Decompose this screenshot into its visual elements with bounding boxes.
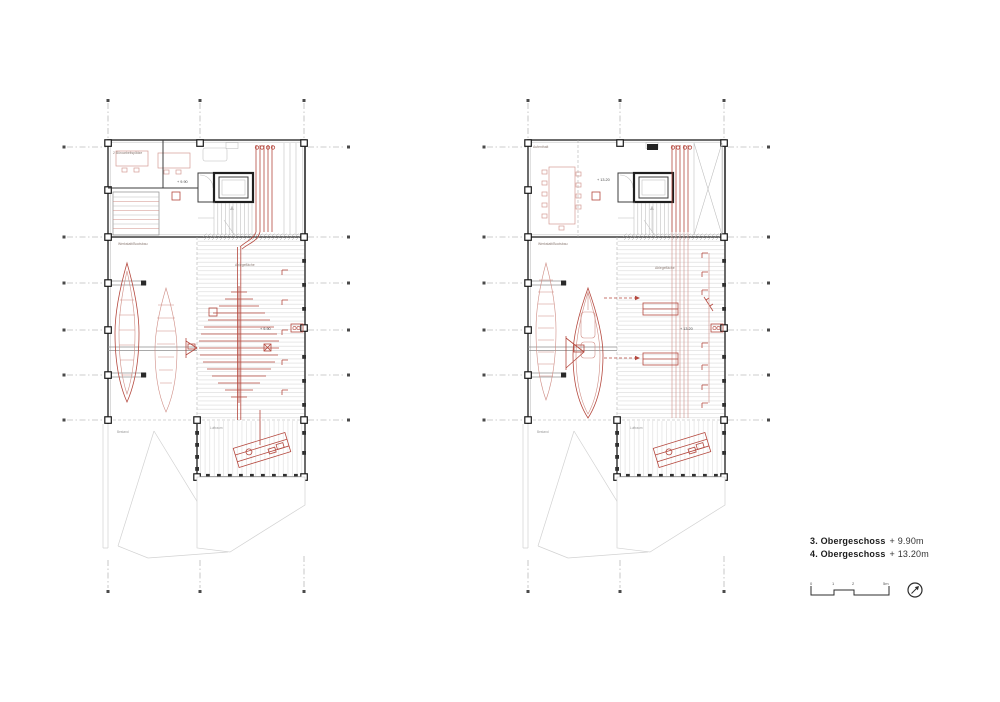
room-label-below: Bestand: [537, 430, 549, 434]
floor-level: + 13.20m: [890, 549, 929, 559]
floor-plan-3og: 2 Büroarbeitsplätze + 9.90 Werkstatt/Boo…: [63, 99, 351, 593]
drawing-sheet: 2 Büroarbeitsplätze + 9.90 Werkstatt/Boo…: [0, 0, 1000, 702]
scale-bar: 0 1 2 5m: [810, 581, 896, 599]
boat-hull-light: [536, 263, 556, 400]
scale-tick-0: 0: [810, 581, 813, 586]
crane-trolley: [186, 338, 197, 358]
room-label-workshop: Werkstatt/Bootsbau: [538, 242, 568, 246]
scale-tick-1: 1: [832, 581, 835, 586]
level-marker-deck: + 9.90: [260, 327, 271, 331]
level-marker-top: + 9.90: [177, 180, 188, 184]
room-label-void: Luftraum: [630, 426, 643, 430]
room-label-lounge: Aufenthalt: [533, 145, 548, 149]
room-label-deck: Ablegefläche: [235, 263, 255, 267]
room-label-deck: Ablegefläche: [655, 266, 675, 270]
map-tools: 0 1 2 5m: [810, 581, 924, 599]
level-marker-top: + 13.20: [597, 178, 610, 182]
fire-damper-icon: [592, 192, 600, 200]
storage-racks: [113, 192, 159, 235]
scale-tick-5m: 5m: [883, 581, 889, 586]
bracing-x: [694, 143, 722, 235]
meeting-table: [542, 167, 581, 230]
boat-hull-small: [155, 288, 177, 412]
north-arrow-icon: [906, 581, 924, 599]
scale-tick-2: 2: [852, 581, 855, 586]
legend-row-3og: 3. Obergeschoss+ 9.90m: [810, 535, 929, 548]
level-marker-deck: + 13.20: [680, 327, 693, 331]
legend-row-4og: 4. Obergeschoss+ 13.20m: [810, 548, 929, 561]
boat-hull-bold: [573, 288, 603, 418]
boat-hull-large: [115, 263, 139, 402]
shaft-bay-lines: [284, 143, 296, 235]
floor-legend: 3. Obergeschoss+ 9.90m 4. Obergeschoss+ …: [810, 535, 929, 561]
room-label-void: Luftraum: [210, 426, 223, 430]
floor-level: + 9.90m: [890, 536, 924, 546]
floor-name: 3. Obergeschoss: [810, 536, 886, 546]
fire-damper-icon: [172, 192, 180, 200]
equipment-block: [647, 144, 658, 150]
room-label-office: 2 Büroarbeitsplätze: [113, 151, 142, 155]
room-label-below: Bestand: [117, 430, 129, 434]
lounge-furniture: [203, 148, 227, 161]
floor-plan-4og: Aufenthalt + 13.20 Werkstatt/Bootsbau Ab…: [483, 99, 771, 593]
room-label-workshop: Werkstatt/Bootsbau: [118, 242, 148, 246]
floor-name: 4. Obergeschoss: [810, 549, 886, 559]
